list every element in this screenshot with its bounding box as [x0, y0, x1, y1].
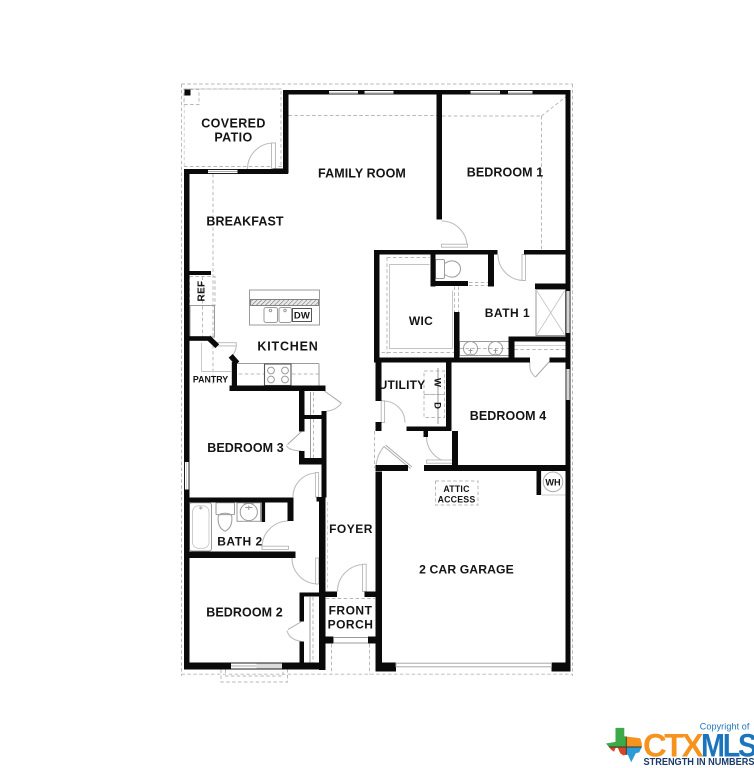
svg-text:DW: DW [294, 311, 310, 322]
svg-text:BREAKFAST: BREAKFAST [206, 215, 284, 229]
svg-text:BATH 1: BATH 1 [485, 306, 530, 320]
svg-text:WIC: WIC [409, 314, 433, 328]
svg-text:ACCESS: ACCESS [438, 495, 476, 505]
svg-text:FAMILY ROOM: FAMILY ROOM [318, 167, 406, 181]
svg-text:W: W [432, 378, 443, 387]
svg-text:ATTIC: ATTIC [443, 484, 470, 494]
svg-text:PORCH: PORCH [328, 618, 374, 632]
svg-text:PATIO: PATIO [214, 131, 252, 145]
svg-text:STRENGTH IN NUMBERS: STRENGTH IN NUMBERS [644, 756, 754, 768]
svg-text:BEDROOM 2: BEDROOM 2 [206, 606, 283, 620]
svg-text:UTILITY: UTILITY [379, 378, 426, 392]
svg-text:PANTRY: PANTRY [193, 374, 228, 384]
svg-text:FOYER: FOYER [329, 522, 373, 536]
svg-text:BEDROOM 3: BEDROOM 3 [207, 441, 284, 455]
svg-text:WH: WH [545, 477, 561, 487]
svg-text:REF: REF [197, 281, 208, 302]
svg-text:KITCHEN: KITCHEN [257, 340, 318, 354]
svg-text:BEDROOM 1: BEDROOM 1 [467, 166, 544, 180]
svg-text:FRONT: FRONT [329, 604, 373, 618]
svg-text:COVERED: COVERED [201, 117, 266, 131]
svg-text:2 CAR GARAGE: 2 CAR GARAGE [419, 563, 514, 577]
svg-text:D: D [432, 402, 443, 409]
svg-text:BEDROOM 4: BEDROOM 4 [470, 409, 547, 423]
svg-text:BATH 2: BATH 2 [217, 535, 262, 549]
